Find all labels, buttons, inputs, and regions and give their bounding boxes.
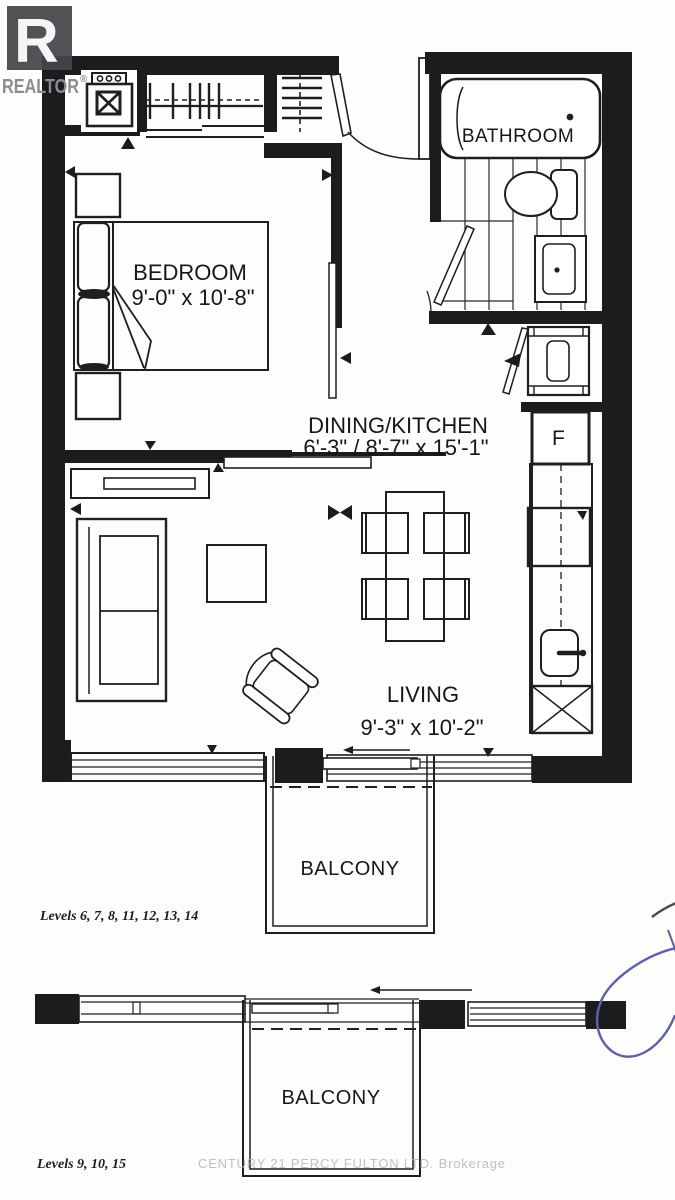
svg-text:9'-0" x 10'-8": 9'-0" x 10'-8": [131, 285, 254, 310]
svg-text:BEDROOM: BEDROOM: [133, 260, 247, 285]
svg-text:BALCONY: BALCONY: [281, 1087, 380, 1109]
svg-text:®: ®: [80, 74, 88, 85]
svg-text:REALTOR: REALTOR: [2, 76, 79, 98]
svg-text:CENTURY 21 PERCY FULTON LTD. B: CENTURY 21 PERCY FULTON LTD. Brokerage: [198, 1156, 506, 1171]
svg-text:R: R: [14, 7, 59, 76]
svg-text:BALCONY: BALCONY: [300, 858, 399, 880]
svg-text:BATHROOM: BATHROOM: [462, 126, 574, 147]
svg-text:9'-3" x 10'-2": 9'-3" x 10'-2": [360, 715, 483, 740]
svg-text:Levels 6, 7, 8, 11, 12, 13, 14: Levels 6, 7, 8, 11, 12, 13, 14: [39, 909, 198, 924]
svg-text:LIVING: LIVING: [387, 682, 459, 707]
svg-text:6'-3" / 8'-7" x 15'-1": 6'-3" / 8'-7" x 15'-1": [303, 435, 488, 460]
svg-text:F: F: [552, 427, 565, 450]
svg-text:Levels 9, 10, 15: Levels 9, 10, 15: [36, 1157, 126, 1172]
